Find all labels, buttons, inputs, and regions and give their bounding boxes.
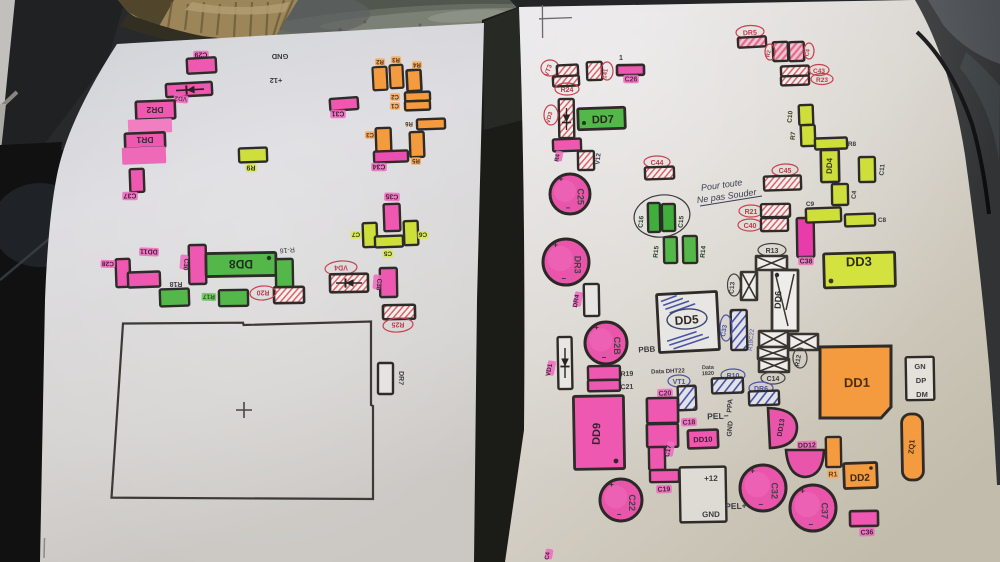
svg-text:R18: R18: [169, 280, 182, 287]
svg-text:C26: C26: [625, 77, 638, 84]
svg-text:C1: C1: [391, 102, 399, 108]
svg-text:C22: C22: [627, 494, 637, 511]
svg-text:DD12: DD12: [798, 442, 816, 450]
svg-text:+: +: [594, 323, 599, 332]
svg-text:C3: C3: [366, 131, 374, 137]
svg-text:DD11: DD11: [140, 247, 158, 255]
svg-text:−: −: [566, 203, 571, 212]
svg-text:GND: GND: [702, 510, 720, 519]
svg-text:+: +: [559, 175, 564, 184]
svg-text:C36: C36: [860, 529, 873, 536]
svg-text:−: −: [758, 500, 763, 509]
svg-text:PPA: PPA: [726, 399, 734, 413]
svg-text:C28: C28: [101, 259, 114, 266]
svg-text:+: +: [800, 487, 805, 496]
svg-text:DR2: DR2: [146, 105, 163, 115]
svg-text:+: +: [609, 480, 614, 489]
svg-text:−: −: [561, 274, 566, 283]
svg-text:C11: C11: [879, 163, 887, 176]
svg-text:C38: C38: [800, 259, 813, 266]
svg-text:GND: GND: [726, 421, 734, 437]
svg-text:DD5: DD5: [674, 312, 699, 328]
svg-text:C7: C7: [351, 231, 360, 238]
svg-text:ZQ1: ZQ1: [906, 439, 916, 454]
svg-text:R24: R24: [561, 87, 574, 94]
svg-text:+12: +12: [704, 474, 718, 483]
svg-text:C40: C40: [744, 223, 757, 230]
svg-text:DR7: DR7: [397, 371, 404, 385]
svg-text:1: 1: [619, 55, 623, 62]
svg-text:DD9: DD9: [591, 423, 604, 445]
svg-text:DD7: DD7: [592, 114, 614, 127]
svg-text:VD4: VD4: [334, 264, 348, 271]
svg-text:DR3: DR3: [573, 256, 583, 274]
svg-text:R9: R9: [246, 164, 255, 171]
svg-text:1820: 1820: [702, 371, 714, 377]
svg-text:+: +: [553, 241, 558, 250]
svg-text:C18: C18: [682, 419, 695, 426]
svg-text:R4: R4: [413, 61, 421, 67]
svg-text:R15: R15: [652, 245, 660, 258]
svg-text:−: −: [617, 510, 622, 519]
svg-text:C10: C10: [786, 110, 794, 123]
svg-text:C38: C38: [374, 278, 382, 291]
svg-text:R6: R6: [405, 120, 413, 126]
svg-text:R25: R25: [391, 321, 404, 328]
svg-text:R21: R21: [745, 209, 758, 216]
svg-text:C31: C31: [331, 110, 344, 117]
svg-text:C2: C2: [391, 93, 399, 99]
svg-text:R2: R2: [376, 58, 384, 64]
svg-text:C16: C16: [637, 215, 645, 228]
svg-text:DD1: DD1: [844, 375, 870, 390]
svg-text:R1: R1: [828, 471, 837, 478]
svg-text:PEL+: PEL+: [725, 501, 747, 512]
svg-text:DD6: DD6: [773, 291, 784, 309]
svg-text:C30: C30: [181, 258, 189, 271]
svg-text:R20: R20: [256, 289, 269, 296]
svg-text:R19: R19: [620, 371, 633, 378]
svg-text:C29: C29: [194, 51, 207, 58]
svg-text:C14: C14: [767, 376, 780, 383]
svg-text:R2: R2: [765, 50, 772, 58]
svg-text:C15: C15: [677, 215, 685, 228]
svg-text:DP: DP: [916, 376, 926, 385]
svg-text:R7: R7: [790, 131, 798, 140]
svg-text:C21: C21: [620, 384, 633, 391]
svg-text:C8: C8: [878, 217, 887, 224]
svg-text:−: −: [808, 520, 813, 529]
svg-text:R8: R8: [848, 141, 857, 148]
svg-text:R14: R14: [699, 245, 707, 258]
svg-text:−: −: [602, 353, 607, 362]
svg-text:R13: R13: [766, 248, 779, 255]
svg-text:DD4: DD4: [825, 157, 835, 174]
svg-text:C25: C25: [576, 188, 586, 205]
svg-text:C45: C45: [779, 168, 792, 175]
svg-text:R5: R5: [412, 157, 420, 163]
svg-text:R23: R23: [816, 77, 828, 84]
svg-text:C13: C13: [728, 281, 736, 294]
svg-text:C19: C19: [657, 486, 670, 493]
svg-text:GN: GN: [914, 362, 925, 371]
svg-text:C6: C6: [418, 231, 427, 238]
svg-text:C4: C4: [851, 190, 859, 199]
svg-text:V12: V12: [595, 152, 603, 165]
svg-text:+: +: [750, 467, 755, 476]
svg-text:C2B: C2B: [612, 337, 622, 356]
svg-text:DM: DM: [916, 390, 928, 399]
svg-text:PBB: PBB: [638, 345, 656, 355]
svg-text:R-16: R-16: [279, 245, 295, 253]
svg-text:C5: C5: [383, 250, 392, 257]
svg-text:R3: R3: [392, 56, 400, 62]
svg-text:+12: +12: [270, 76, 283, 85]
svg-text:C9: C9: [806, 201, 815, 208]
svg-text:C34: C34: [372, 163, 385, 170]
svg-text:GND: GND: [271, 52, 288, 61]
svg-text:C37: C37: [820, 502, 830, 519]
svg-text:R17: R17: [202, 292, 215, 299]
svg-text:DD2: DD2: [850, 473, 871, 485]
svg-text:DD8: DD8: [229, 257, 253, 271]
svg-text:DR1: DR1: [136, 135, 153, 145]
svg-text:C35: C35: [385, 192, 398, 199]
svg-text:DD3: DD3: [846, 254, 872, 270]
svg-text:DD10: DD10: [693, 435, 712, 445]
svg-text:C37: C37: [123, 192, 136, 199]
svg-text:C32: C32: [770, 482, 780, 499]
